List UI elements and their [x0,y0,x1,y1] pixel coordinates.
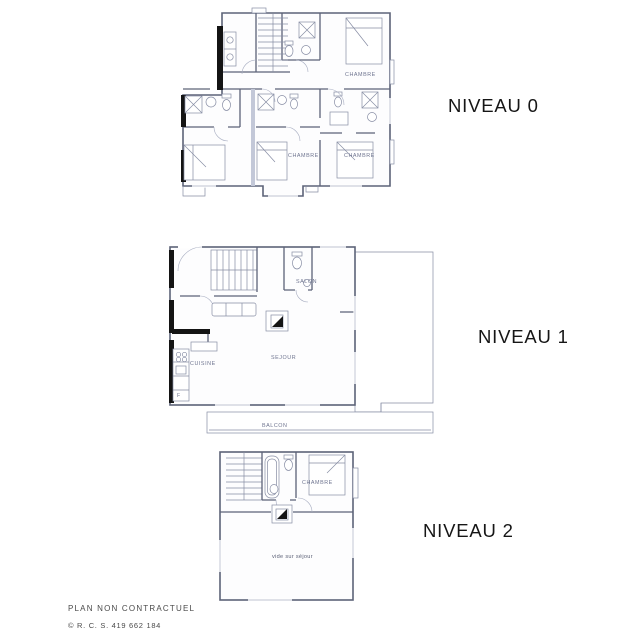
niveau-2-label: NIVEAU 2 [423,520,514,541]
n0-bed-bottom-left [184,145,225,180]
floor-plan-niveau-1: F SALON SEJOUR CUISINE BALCON [169,247,433,433]
n1-balcony-outline [207,412,433,433]
n1-black-wall-1 [169,250,174,288]
n0-top-bump [252,8,266,13]
n2-bed [309,455,345,495]
n0-wc-toilet-icon [285,41,293,57]
footer-rcs: © R. C. S. 419 662 184 [68,621,161,630]
n1-outer-walls [170,247,355,405]
floor-plan-niveau-2: CHAMBRE vide sur séjour [220,452,358,600]
n2-vide-label: vide sur séjour [272,554,313,560]
n1-balcon-label: BALCON [262,423,287,429]
n1-staircase [211,250,257,290]
footer-disclaimer: PLAN NON CONTRACTUEL [68,604,195,613]
n0-bed-right [337,142,373,178]
n0-bed-center [257,142,287,180]
floor-plans-canvas: CHAMBRE CHAMBRE [0,0,640,640]
n1-terrace-outline [355,252,433,412]
n0-party-wall [251,89,255,186]
n0-right-bump-1 [390,60,394,84]
n0-chambre-top-label: CHAMBRE [345,72,376,78]
n0-chambre-mid-label: CHAMBRE [288,153,319,159]
n2-fireplace [272,505,292,523]
n1-black-wall-4 [172,329,210,334]
floor-plan-niveau-0: CHAMBRE CHAMBRE [181,8,394,196]
n2-sink-icon [270,485,278,494]
n0-black-wall-1 [217,26,223,90]
n1-fireplace [266,311,288,331]
niveau-0-label: NIVEAU 0 [448,95,539,116]
n0-bottom-right-step [306,186,318,192]
n1-fridge-label: F [177,393,180,399]
n1-black-wall-2 [169,300,174,333]
n0-kitchenette [224,32,236,66]
niveau-1-label: NIVEAU 1 [478,326,569,347]
n2-right-bump [353,468,358,498]
n2-chambre-label: CHAMBRE [302,480,333,486]
n1-cuisine-label: CUISINE [190,361,216,367]
n0-chambre-right-label: CHAMBRE [344,153,375,159]
n2-toilet-icon [284,455,293,471]
n1-sejour-label: SEJOUR [271,355,296,361]
n1-sofa [212,303,256,316]
n1-salon-label: SALON [296,279,317,285]
n0-bed-top-right [346,18,382,64]
n0-right-bump-2 [390,140,394,164]
